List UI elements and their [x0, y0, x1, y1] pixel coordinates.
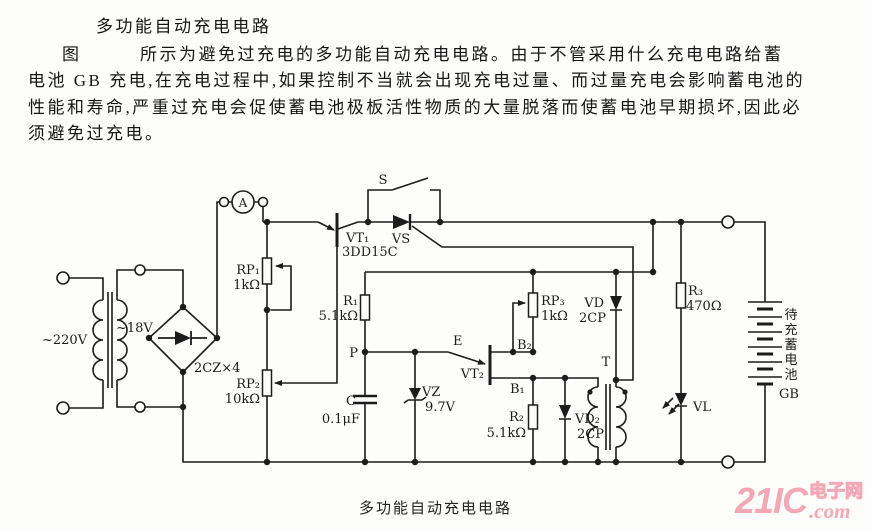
- component-labels: ~220V ~18V 2CZ×4 A RP₁ 1kΩ RP₂ 10kΩ VT₁ …: [42, 173, 799, 442]
- rp1-wiper: [271, 266, 292, 310]
- secondary-terminal-bottom: [135, 402, 145, 412]
- r2-ref: R₂: [509, 410, 524, 425]
- transformer-core: [108, 292, 112, 388]
- t-polarity-dot-right: [622, 389, 627, 394]
- resistor-boxes: [263, 258, 686, 429]
- rp3-value: 1kΩ: [541, 309, 568, 324]
- vd-part: 2CP: [579, 311, 606, 326]
- battery-label-char: 充: [784, 322, 797, 338]
- vl-label: VL: [692, 400, 711, 415]
- ujt-e-label: E: [453, 334, 463, 349]
- r1-value: 5.1kΩ: [319, 309, 358, 324]
- battery-label-char: 蓄: [784, 338, 797, 353]
- output-terminal-top: [722, 216, 734, 228]
- secondary-terminal-top: [135, 265, 145, 275]
- wire-r3-vl: [675, 222, 687, 462]
- rp2-ref: RP₂: [236, 377, 260, 392]
- ammeter-terminal-left: [220, 198, 229, 207]
- ujt-ref: VT₂: [460, 367, 484, 382]
- switch-label: S: [379, 173, 388, 188]
- t-core: [606, 384, 610, 450]
- rp3-resistor: [529, 293, 538, 317]
- vt1-collector: [338, 222, 358, 229]
- output-terminal-bottom: [722, 456, 734, 468]
- mains-terminal-top: [57, 272, 69, 284]
- zener-value: 9.7V: [425, 400, 456, 415]
- battery-label-char: 池: [784, 368, 797, 383]
- watermark: 21IC 电子网 .com: [735, 482, 863, 526]
- wire-b1: [490, 378, 598, 387]
- battery-ref: GB: [779, 387, 799, 402]
- r1-resistor: [361, 295, 370, 320]
- vt1-ref: VT₁: [345, 231, 369, 246]
- vl-ray-1: [663, 398, 673, 408]
- r2-value: 5.1kΩ: [487, 426, 526, 441]
- cap-value: 0.1μF: [322, 412, 360, 427]
- vd-diode-icon: [610, 296, 622, 310]
- ujt-b2-label: B₂: [517, 338, 532, 353]
- t-label: T: [602, 355, 611, 370]
- wire-zener: [404, 352, 426, 462]
- mains-label: ~220V: [42, 333, 88, 348]
- p-node-label: P: [349, 346, 358, 361]
- rp2-resistor: [263, 370, 272, 396]
- battery-label-char: 电: [784, 353, 797, 368]
- zener-ref: VZ: [421, 385, 440, 400]
- r1-ref: R₁: [343, 294, 358, 309]
- vl-led-icon: [675, 393, 687, 406]
- rp2-value: 10kΩ: [225, 392, 260, 407]
- vs-thyristor-icon: [393, 215, 410, 229]
- vd2-diode-icon: [559, 405, 571, 419]
- vt1-emitter-arrow: [318, 222, 334, 230]
- vs-label: VS: [391, 232, 410, 247]
- circuit-diagram: ~220V ~18V 2CZ×4 A RP₁ 1kΩ RP₂ 10kΩ VT₁ …: [0, 0, 871, 530]
- rp1-resistor: [263, 258, 272, 284]
- wire-t-bottom: [598, 447, 616, 462]
- rp3-ref: RP₃: [541, 294, 565, 309]
- r3-ref: R₃: [688, 284, 703, 299]
- vz-zener-icon: [409, 388, 421, 400]
- r3-value: 470Ω: [686, 299, 722, 314]
- vd2-part: 2CP: [577, 427, 604, 442]
- cap-ref: C: [346, 394, 356, 409]
- battery-label-char: 待: [784, 308, 797, 323]
- secondary-label: ~18V: [116, 321, 153, 336]
- rp1-value: 1kΩ: [233, 278, 260, 293]
- ammeter-terminal-right: [259, 198, 268, 207]
- vl-ray-2: [669, 404, 679, 414]
- wires: [69, 178, 782, 462]
- ujt-emitter-arrow: [448, 352, 485, 364]
- vd2-ref: VD₂: [574, 412, 600, 427]
- ammeter-label: A: [238, 196, 248, 210]
- wire-vd2: [559, 378, 571, 462]
- vt1-part: 3DD15C: [342, 245, 398, 260]
- secondary-coil: [117, 300, 127, 380]
- vd-ref: VD: [583, 296, 604, 311]
- bridge-label: 2CZ×4: [194, 361, 240, 376]
- t-secondary-coil: [616, 387, 626, 447]
- bridge-diode-icon: [175, 331, 191, 345]
- mains-terminal-bottom: [57, 402, 69, 414]
- t-polarity-dot-left: [587, 389, 592, 394]
- primary-coil: [93, 300, 103, 380]
- watermark-com: .com: [809, 501, 850, 521]
- cap-plates: [353, 396, 377, 403]
- ujt-b1-label: B₁: [510, 382, 525, 397]
- r3-resistor: [677, 283, 686, 308]
- r2-resistor: [529, 405, 538, 429]
- watermark-brand: 21IC: [735, 482, 807, 520]
- wire-vd: [610, 272, 622, 387]
- rp1-ref: RP₁: [236, 263, 260, 278]
